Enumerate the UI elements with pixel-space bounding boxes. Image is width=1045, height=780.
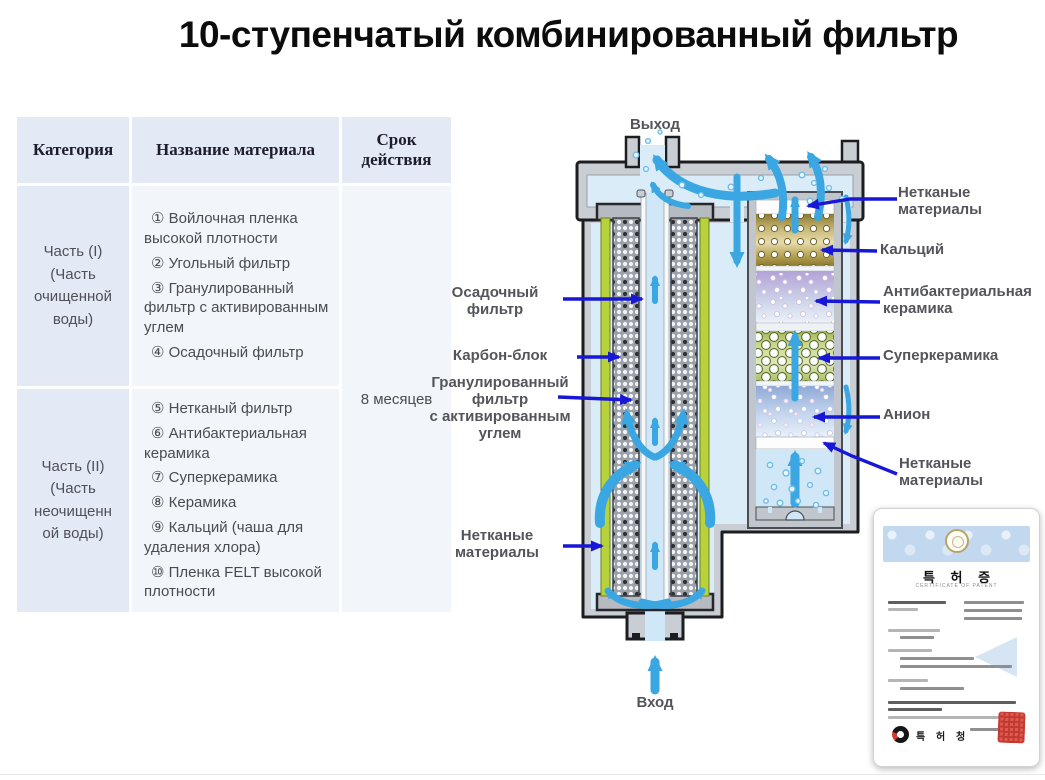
cert-text-line <box>964 609 1022 612</box>
column-header-category: Категория <box>17 117 129 183</box>
page-title: 10-ступенчатый комбинированный фильтр <box>0 14 1045 56</box>
layer-nonwoven-bottom <box>756 437 834 449</box>
certificate-footer: 특 허 청 <box>886 718 1027 752</box>
label-nonwoven-left: Нетканые материалы <box>436 527 558 561</box>
filter-spec-table: Категория Название материала Срок действ… <box>14 114 454 615</box>
material-item: ⑦ Суперкерамика <box>144 468 331 488</box>
certificate-emblem-icon <box>945 529 969 553</box>
red-seal-stamp-icon <box>997 712 1025 744</box>
layer-antibacterial-ceramic <box>756 271 834 323</box>
column-header-material: Название материала <box>132 117 339 183</box>
cert-text-line <box>888 701 1016 704</box>
nonwoven-strip-left <box>601 218 610 596</box>
cert-text-line <box>964 617 1022 620</box>
material-item: ③ Гранулированный фильтр с активированны… <box>144 279 331 338</box>
cert-text-line <box>900 687 964 690</box>
materials-part2: ⑤ Нетканый фильтр ⑥ Антибактериальная ке… <box>132 389 339 612</box>
cert-text-line <box>888 629 940 632</box>
material-item: ④ Осадочный фильтр <box>144 343 331 363</box>
carbon-block-right <box>671 218 697 596</box>
materials-part1: ① Войлочная пленка высокой плотности ② У… <box>132 186 339 386</box>
material-item: ⑨ Кальций (чаша для удаления хлора) <box>144 518 331 558</box>
carbon-block-left <box>613 218 639 596</box>
nonwoven-strip-right <box>700 218 709 596</box>
label-carbon-block: Карбон-блок <box>430 347 570 364</box>
category-part2: Часть (II) (Часть неочищенн ой воды) <box>17 389 129 612</box>
certificate-office: 특 허 청 <box>916 728 969 743</box>
patent-certificate: 특 허 증 CERTIFICATE OF PATENT 특 허 청 <box>873 508 1040 767</box>
material-item: ② Угольный фильтр <box>144 254 331 274</box>
cert-text-line <box>888 608 918 611</box>
cert-text-line <box>900 665 1012 668</box>
material-item: ① Войлочная пленка высокой плотности <box>144 209 331 249</box>
cert-text-line <box>900 657 974 660</box>
material-item: ⑤ Нетканый фильтр <box>144 399 331 419</box>
certificate-header-band <box>883 526 1030 562</box>
table-row-part1: Часть (I) (Часть очищенной воды) ① Войло… <box>17 186 451 386</box>
cert-text-line <box>964 601 1024 604</box>
material-item: ⑩ Пленка FELT высокой плотности <box>144 563 331 603</box>
cert-text-line <box>888 708 942 711</box>
label-anion: Анион <box>883 406 930 423</box>
label-granulated-carbon-filter: Гранулированный фильтр с активированным … <box>424 374 576 442</box>
table-header-row: Категория Название материала Срок действ… <box>17 117 451 183</box>
cert-text-line <box>900 636 934 639</box>
label-nonwoven-top-right: Нетканые материалы <box>898 184 982 218</box>
certificate-watermark <box>975 637 1017 677</box>
inlet-label: Вход <box>605 694 705 711</box>
material-item: ⑥ Антибактериальная керамика <box>144 424 331 464</box>
cert-text-line <box>888 601 946 604</box>
label-calcium: Кальций <box>880 241 944 258</box>
certificate-subtitle: CERTIFICATE OF PATENT <box>874 583 1039 589</box>
material-item: ⑧ Керамика <box>144 493 331 513</box>
label-antibacterial-ceramic: Антибактериальная керамика <box>883 283 1032 317</box>
cert-text-line <box>888 649 932 652</box>
label-sediment-filter: Осадочный фильтр <box>430 284 560 318</box>
outlet-label: Выход <box>605 116 705 133</box>
bottom-divider <box>0 774 1045 775</box>
category-part1: Часть (I) (Часть очищенной воды) <box>17 186 129 386</box>
kipo-logo-icon <box>892 726 909 743</box>
label-nonwoven-bottom-right: Нетканые материалы <box>899 455 983 489</box>
cert-text-line <box>888 679 928 682</box>
label-superceramic: Суперкерамика <box>883 347 998 364</box>
